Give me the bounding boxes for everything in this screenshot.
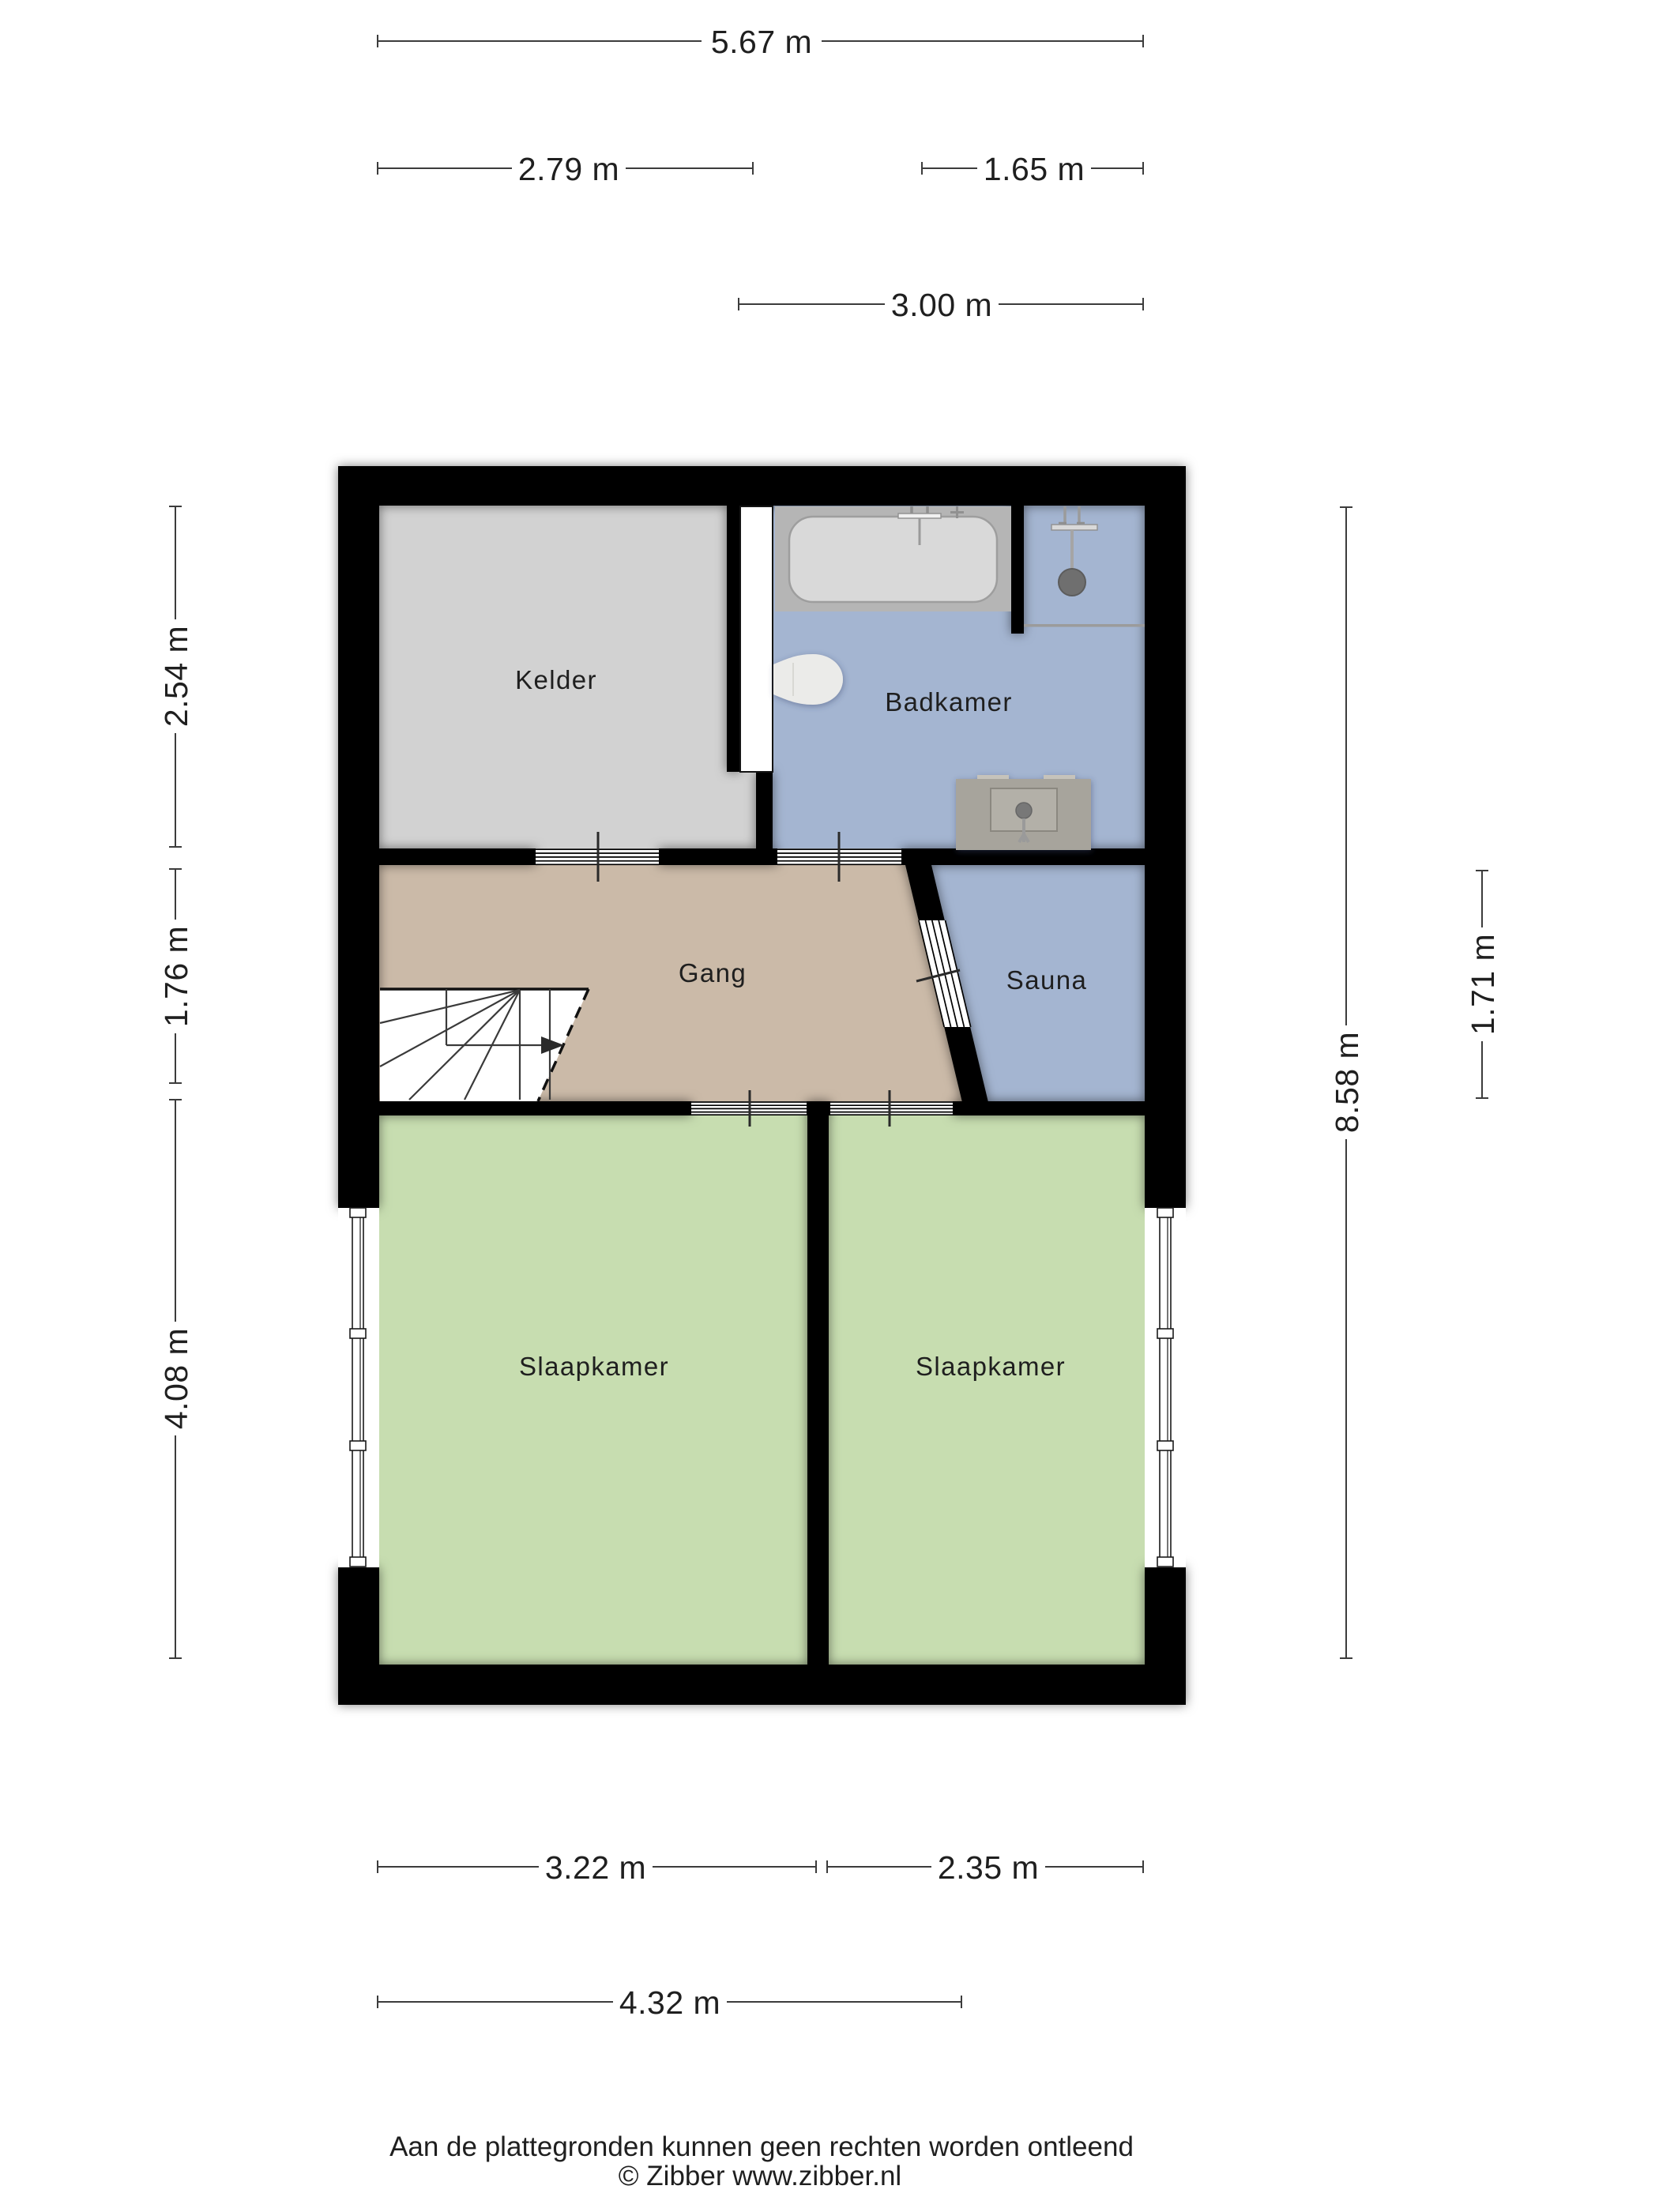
svg-text:2.35 m: 2.35 m <box>938 1849 1039 1886</box>
svg-text:Gang: Gang <box>679 958 747 987</box>
svg-text:3.00 m: 3.00 m <box>891 287 992 323</box>
svg-text:Badkamer: Badkamer <box>885 687 1013 717</box>
svg-text:3.22 m: 3.22 m <box>545 1849 646 1886</box>
svg-text:8.58 m: 8.58 m <box>1329 1032 1365 1133</box>
svg-text:© Zibber www.zibber.nl: © Zibber www.zibber.nl <box>619 2161 901 2191</box>
svg-text:2.54 m: 2.54 m <box>158 626 194 727</box>
svg-text:Slaapkamer: Slaapkamer <box>916 1352 1066 1381</box>
svg-text:1.76 m: 1.76 m <box>158 926 194 1027</box>
svg-text:Kelder: Kelder <box>515 665 597 694</box>
svg-text:Aan de plattegronden kunnen ge: Aan de plattegronden kunnen geen rechten… <box>389 2131 1134 2162</box>
svg-text:2.79 m: 2.79 m <box>518 151 619 187</box>
svg-text:Slaapkamer: Slaapkamer <box>519 1352 669 1381</box>
svg-text:5.67 m: 5.67 m <box>711 24 812 60</box>
svg-text:4.32 m: 4.32 m <box>619 1984 720 2021</box>
svg-text:1.65 m: 1.65 m <box>984 151 1085 187</box>
svg-text:Sauna: Sauna <box>1006 965 1087 995</box>
svg-text:1.71 m: 1.71 m <box>1465 934 1501 1035</box>
svg-text:4.08 m: 4.08 m <box>158 1328 194 1429</box>
